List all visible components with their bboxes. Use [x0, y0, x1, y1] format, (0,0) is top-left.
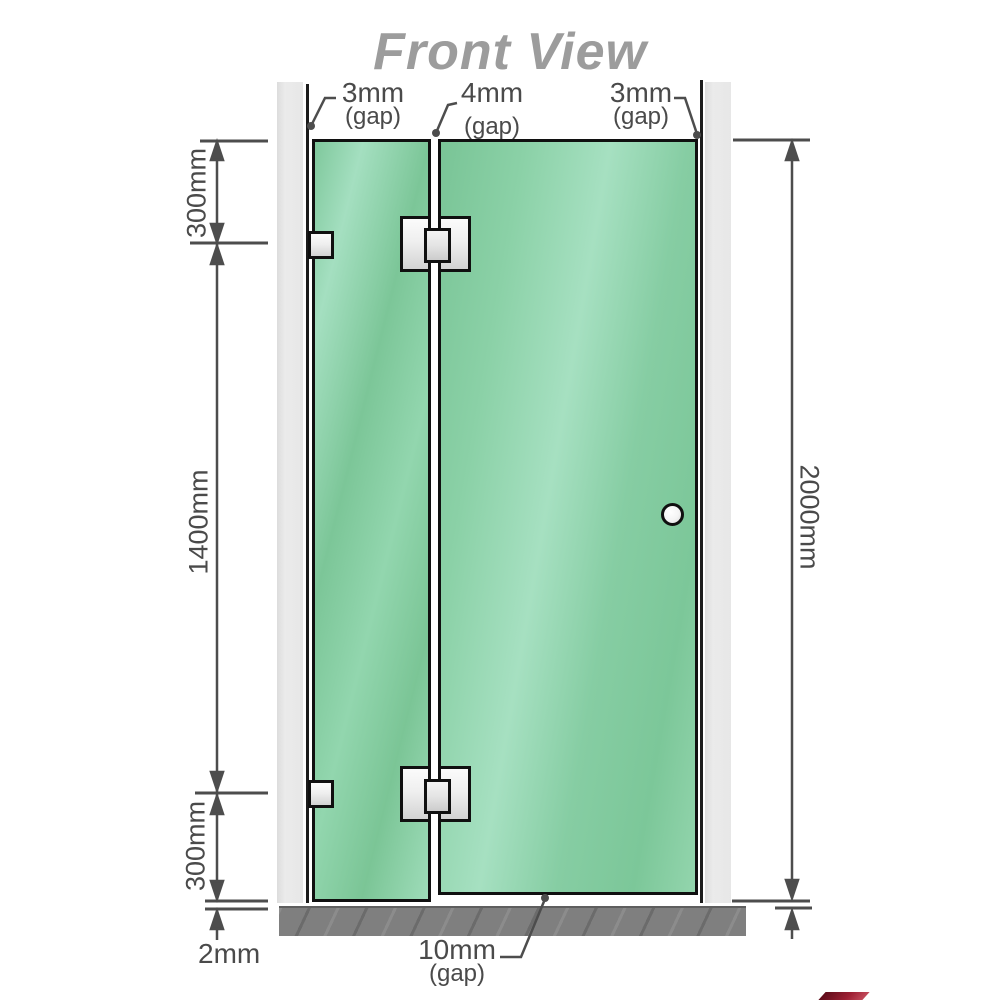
- floor-gap-label: 2mm: [198, 938, 260, 970]
- right-wall: [705, 82, 731, 903]
- gap-label-bottom: 10mm (gap): [412, 936, 502, 985]
- left-wall: [277, 82, 303, 903]
- front-view-diagram: Front View: [0, 0, 1000, 1000]
- floor-base: [279, 906, 746, 936]
- hinge-top-clamp: [424, 228, 451, 263]
- right-wall-edge-line: [700, 80, 703, 903]
- watermark-logo: [818, 992, 869, 1000]
- dimension-label-bottom-segment: 300mm: [181, 801, 212, 891]
- dimension-label-top-segment: 300mm: [182, 148, 213, 238]
- door-knob: [661, 503, 684, 526]
- gap-label-middle-qualifier: (gap): [451, 116, 533, 138]
- leader-dot-gap-bottom: [541, 894, 549, 902]
- leader-dot-gap-middle: [432, 129, 440, 137]
- gap-label-bottom-qualifier: (gap): [412, 963, 502, 985]
- gap-label-right: 3mm (gap): [602, 79, 680, 128]
- gap-label-middle-value: 4mm: [451, 79, 533, 106]
- wall-bracket-top: [308, 231, 334, 259]
- gap-label-left: 3mm (gap): [332, 79, 414, 128]
- dimension-label-middle-segment: 1400mm: [184, 469, 215, 574]
- gap-label-left-qualifier: (gap): [332, 106, 414, 128]
- gap-label-left-value: 3mm: [332, 79, 414, 106]
- page-title: Front View: [373, 22, 647, 82]
- dimension-label-total-height: 2000mm: [794, 464, 825, 569]
- gap-label-bottom-value: 10mm: [412, 936, 502, 963]
- wall-bracket-bottom: [308, 780, 334, 808]
- gap-label-middle: 4mm (gap): [451, 79, 533, 138]
- gap-label-right-qualifier: (gap): [602, 106, 680, 128]
- door-glass-panel: [438, 139, 698, 895]
- hinge-bottom-clamp: [424, 779, 451, 814]
- gap-label-right-value: 3mm: [602, 79, 680, 106]
